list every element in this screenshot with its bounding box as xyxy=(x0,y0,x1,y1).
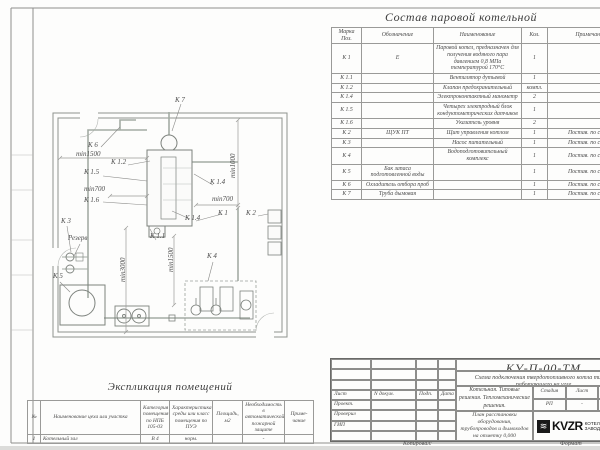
logo-caption-line1: КОТЕЛЬН xyxy=(585,421,600,426)
col-room-name: Наименование цеха или участка xyxy=(41,401,141,435)
table-row: К 1.4Электроконтактный манометр2 xyxy=(332,93,600,103)
cell-designation xyxy=(362,138,434,148)
cell-mark: К 5 xyxy=(332,164,362,180)
cell-note xyxy=(548,44,600,74)
explication-table: № Наименование цеха или участка Категори… xyxy=(27,400,314,444)
cell-designation: Е xyxy=(362,44,434,74)
cell-designation xyxy=(362,102,434,118)
table-row: К 1.5Четырех электродный блок кондуктоме… xyxy=(332,102,600,118)
col-note: Примечания xyxy=(548,28,600,44)
plan-label-k1-6: К 1.6 xyxy=(84,197,99,204)
plan-label-k3: К 3 xyxy=(61,218,71,225)
cell-name: Вентилятор дутьевой xyxy=(434,73,522,83)
composition-table: Марка Поз. Обозначение Наименование Кол.… xyxy=(331,27,600,200)
cell-name xyxy=(434,164,522,180)
cell-num: 1 xyxy=(28,435,41,444)
cell-qty: 1 xyxy=(522,102,548,118)
table-row: К 7Труба дымовая1Постав. по соглас xyxy=(332,190,600,200)
cell-name xyxy=(434,190,522,200)
plan-label-k2: К 2 xyxy=(246,210,256,217)
plan-label-k1: К 1 xyxy=(218,210,228,217)
cell-qty: 2 xyxy=(522,93,548,103)
col-area: Площадь, м2 xyxy=(213,401,243,435)
signature-header-row: Лист N докум. Подп. Дата xyxy=(331,390,456,400)
plan-label-k1-1: К 1.1 xyxy=(150,233,165,240)
table-row: К 1ЕПаровой котел, предназначен для полу… xyxy=(332,44,600,74)
cell-designation: Труба дымовая xyxy=(362,190,434,200)
cell-note: Постав. по соглас xyxy=(548,190,600,200)
table-row: К 1.6Указатель уровня2 xyxy=(332,119,600,129)
col-fire-protection: Необходимость в автоматической пожарной … xyxy=(243,401,285,435)
cell-environment: норм. xyxy=(170,435,213,444)
col-environment: Характеристика среды или класс помещения… xyxy=(170,401,213,435)
hdr-sign: Подп. xyxy=(416,390,438,400)
cell-note: Постав. по соглас xyxy=(548,164,600,180)
signature-row: Проект. xyxy=(331,400,456,410)
scan-edge xyxy=(0,446,600,450)
cell-note: Постав. по соглас xyxy=(548,148,600,164)
cell-note xyxy=(548,93,600,103)
cell-mark: К 1.5 xyxy=(332,102,362,118)
table-row: К 2ЩУК ПТЩит управления котлом1Постав. п… xyxy=(332,128,600,138)
col-designation: Обозначение xyxy=(362,28,434,44)
cell-designation xyxy=(362,119,434,129)
table-row: К 3Насос питательный1Постав. по соглас xyxy=(332,138,600,148)
table-row: К 5Бак запаса подготовленной воды1Постав… xyxy=(332,164,600,180)
plan-label-k1-4b: К 1.4 xyxy=(185,215,200,222)
plan-label-k1-2: К 1.2 xyxy=(111,159,126,166)
cell-designation: Бак запаса подготовленной воды xyxy=(362,164,434,180)
col-qty: Кол. xyxy=(522,28,548,44)
plan-sheet-title: План расстановки оборудования, трубопров… xyxy=(456,411,533,441)
cell-qty: 1 xyxy=(522,128,548,138)
cell-name: Четырех электродный блок кондуктометриче… xyxy=(434,102,522,118)
role-label: ГИП xyxy=(331,421,371,431)
cell-qty: 1 xyxy=(522,190,548,200)
cell-note xyxy=(548,73,600,83)
cell-designation xyxy=(362,73,434,83)
title-block: Лист N докум. Подп. Дата Проект. Провери… xyxy=(330,358,600,442)
kvzr-logo-text: KVZR xyxy=(552,419,583,433)
stage-value: РП xyxy=(533,399,566,411)
control-panel-k2 xyxy=(268,210,281,255)
cell-name: Паровой котел, предназначен для получени… xyxy=(434,44,522,74)
cell-fire-protection: - xyxy=(243,435,285,444)
cell-qty: 1 xyxy=(522,44,548,74)
signature-row: Проверил xyxy=(331,410,456,420)
cell-designation xyxy=(362,93,434,103)
sheet-header: Лист xyxy=(566,386,599,398)
table-row: К 4Водоподготовительный комплекс1Постав.… xyxy=(332,148,600,164)
doc-description: Схема подключения твердотопливного котла… xyxy=(456,371,600,387)
composition-title: Состав паровой котельной xyxy=(330,10,592,25)
cell-note xyxy=(548,83,600,93)
cell-name xyxy=(434,180,522,190)
cell-qty: 2 xyxy=(522,119,548,129)
plan-label-k5: К 5 xyxy=(53,273,63,280)
explication-header-row: № Наименование цеха или участка Категори… xyxy=(28,401,314,435)
plan-label-k1-4a: К 1.4 xyxy=(210,179,225,186)
hdr-date: Дата xyxy=(438,390,456,400)
door-openings xyxy=(51,111,274,339)
hdr-sheet: Лист xyxy=(331,390,371,400)
org-solutions: Котельная. Типовые решения. Тепломеханич… xyxy=(456,386,533,411)
cell-area xyxy=(213,435,243,444)
hdr-doc: N докум. xyxy=(371,390,416,400)
cell-note: Постав. по соглас xyxy=(548,128,600,138)
table-row: К 1.1Вентилятор дутьевой1 xyxy=(332,73,600,83)
stage-header: Стадия xyxy=(533,386,566,398)
plan-label-k6: К 6 xyxy=(88,142,98,149)
tank-k5 xyxy=(60,285,105,325)
stage-grid: Стадия Лист Листов РП - - xyxy=(533,386,600,411)
cell-name: Электроконтактный манометр xyxy=(434,93,522,103)
kvzr-logo-icon: ≋ xyxy=(537,420,550,433)
cell-category: В 4 xyxy=(141,435,170,444)
cell-mark: К 1.1 xyxy=(332,73,362,83)
table-row: К 6Охладитель отбора проб1Постав. по сог… xyxy=(332,180,600,190)
cell-room-name: Котельный зал xyxy=(41,435,141,444)
plan-label-rezerv: Резерв xyxy=(68,235,87,242)
plan-label-k1-5: К 1.5 xyxy=(84,169,99,176)
water-treatment-k4 xyxy=(169,281,256,330)
kvzr-logo-caption: КОТЕЛЬН ЗАВОД Р xyxy=(585,421,600,432)
plan-dim-min1000: min1000 xyxy=(230,154,237,179)
cell-note xyxy=(285,435,314,444)
cell-note: Постав. по соглас xyxy=(548,180,600,190)
sheet-value: - xyxy=(566,399,599,411)
cell-name: Насос питательный xyxy=(434,138,522,148)
title-block-main: КУ-П-00-ТМ Схема подключения твердотопли… xyxy=(456,359,600,441)
cell-mark: К 1 xyxy=(332,44,362,74)
doc-number: КУ-П-00-ТМ xyxy=(456,359,600,371)
cell-designation xyxy=(362,83,434,93)
cell-mark: К 6 xyxy=(332,180,362,190)
plan-dim-min700-a: min700 xyxy=(84,186,105,193)
pumps-k3 xyxy=(62,253,149,326)
plan-dim-min700-b: min700 xyxy=(212,196,233,203)
role-label: Проверил xyxy=(331,410,371,420)
cell-mark: К 1.4 xyxy=(332,93,362,103)
composition-header-row: Марка Поз. Обозначение Наименование Кол.… xyxy=(332,28,600,44)
explication-title: Экспликация помещений xyxy=(55,381,285,393)
cell-note: Постав. по соглас xyxy=(548,138,600,148)
plan-label-k4: К 4 xyxy=(207,253,217,260)
logo-caption-line2: ЗАВОД Р xyxy=(585,426,600,431)
table-row: К 1.2Клапан предохранительныйкомпл. xyxy=(332,83,600,93)
col-category: Категория помещения по НПБ 105-03 xyxy=(141,401,170,435)
drawing-sheet: К 7 К 6 min1500 К 1.2 К 1.5 min700 К 1.6… xyxy=(0,0,600,450)
cell-note xyxy=(548,102,600,118)
cell-mark: К 3 xyxy=(332,138,362,148)
cell-mark: К 1.2 xyxy=(332,83,362,93)
cell-qty: 1 xyxy=(522,148,548,164)
cell-note xyxy=(548,119,600,129)
plan-dim-min3000: min3000 xyxy=(120,258,127,283)
cell-mark: К 7 xyxy=(332,190,362,200)
col-num: № xyxy=(28,401,41,435)
cell-designation xyxy=(362,148,434,164)
table-row: 1 Котельный зал В 4 норм. - xyxy=(28,435,314,444)
plan-dim-min1500-a: min1500 xyxy=(76,151,101,158)
plan-dim-min1500-b: min1500 xyxy=(168,248,175,273)
company-logo: ≋ KVZR КОТЕЛЬН ЗАВОД Р xyxy=(533,411,600,441)
plan-label-k7: К 7 xyxy=(175,97,185,104)
col-mark: Марка Поз. xyxy=(332,28,362,44)
col-note: Приме- чание xyxy=(285,401,314,435)
cell-name: Клапан предохранительный xyxy=(434,83,522,93)
signature-row: ГИП xyxy=(331,421,456,431)
cell-designation: Охладитель отбора проб xyxy=(362,180,434,190)
col-name: Наименование xyxy=(434,28,522,44)
cell-mark: К 4 xyxy=(332,148,362,164)
cell-qty: компл. xyxy=(522,83,548,93)
cell-qty: 1 xyxy=(522,180,548,190)
cell-name: Щит управления котлом xyxy=(434,128,522,138)
cell-qty: 1 xyxy=(522,138,548,148)
cell-mark: К 2 xyxy=(332,128,362,138)
cell-qty: 1 xyxy=(522,164,548,180)
cell-name: Водоподготовительный комплекс xyxy=(434,148,522,164)
cell-designation: ЩУК ПТ xyxy=(362,128,434,138)
cell-qty: 1 xyxy=(522,73,548,83)
title-block-signatures: Лист N докум. Подп. Дата Проект. Провери… xyxy=(331,359,456,441)
role-label: Проект. xyxy=(331,400,371,410)
cell-mark: К 1.6 xyxy=(332,119,362,129)
cell-name: Указатель уровня xyxy=(434,119,522,129)
